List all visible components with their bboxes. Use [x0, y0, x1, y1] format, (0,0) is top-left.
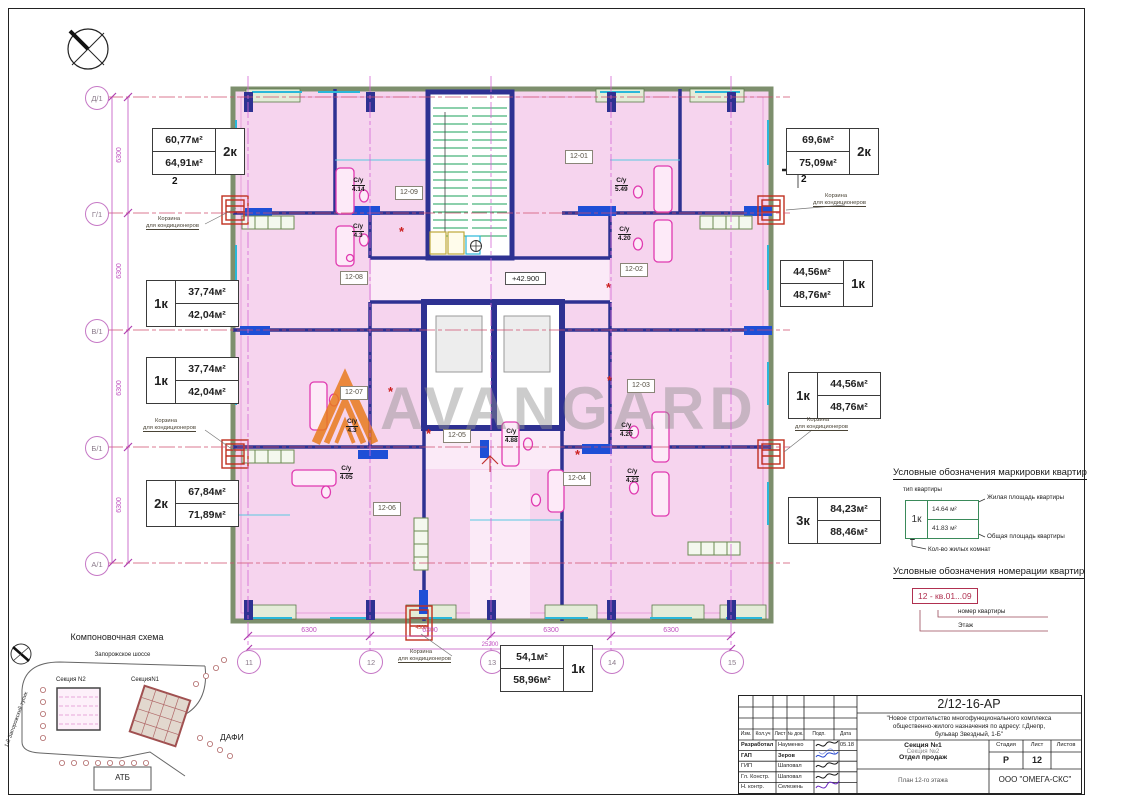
apartment-tag: 12-01: [565, 150, 593, 164]
signatures: [816, 741, 839, 788]
apartment-tag: 12-02: [620, 263, 648, 277]
axis-bubble-col: 11: [237, 650, 261, 674]
t-role: ГИП: [741, 763, 752, 769]
area-label: 84,23м²88,46м² 3к: [788, 497, 881, 544]
apartment-tag: 12-06: [373, 502, 401, 516]
area-label: 54,1м²58,96м² 1к: [500, 645, 593, 692]
wc-label: С/у5.49: [615, 177, 628, 193]
legend-marking-title: Условные обозначения маркировки квартир: [893, 467, 1087, 480]
basket-note: Корзинадля кондиционеров: [398, 649, 451, 663]
section-number: 2: [801, 174, 807, 185]
tb-project-desc: бульвар Звездный, 1-Б": [859, 731, 1079, 738]
area-label: 69,6м²75,09м² 2к: [786, 128, 879, 175]
wc-label: С/у4.20: [618, 226, 631, 242]
tb-name: Шаповал: [778, 774, 802, 780]
basket-note: Корзинадля кондиционеров: [795, 417, 848, 431]
tb-project-desc: "Новое строительство многофункциональног…: [859, 715, 1079, 722]
title-block: Изм. Кол.уч Лист № док. Подп. Дата Разра…: [738, 695, 1082, 794]
wc-label: С/у4.05: [340, 465, 353, 481]
apartment-tag: 12-07: [340, 386, 368, 400]
tb-name: Шаповал: [778, 763, 802, 769]
section-number: 2: [172, 176, 178, 187]
area-label: 37,74м²42,04м² 1к: [146, 357, 239, 404]
legend-living-label: Жилая площадь квартиры: [987, 494, 1064, 501]
axis-bubble-row: Д/1: [85, 86, 109, 110]
site-atb-label: АТБ: [94, 773, 151, 782]
tb-stage-value: Р: [989, 755, 1023, 765]
tb-role: ГАП: [741, 753, 752, 759]
tb-doc-code: 2/12-16-АР: [857, 697, 1081, 711]
legend-numbering-sample: 12 - кв.01...09: [912, 588, 978, 604]
area-label: 44,56м²48,76м² 1к: [780, 260, 873, 307]
legend-numbering-title: Условные обозначения номерации квартир: [893, 566, 1084, 579]
axis-bubble-row: А/1: [85, 552, 109, 576]
area-label: 44,56м²48,76м² 1к: [788, 372, 881, 419]
tb-name: Науменко: [778, 742, 804, 748]
tb-drawing-title: План 12-го этажа: [857, 777, 989, 784]
site-road-label: Запорожское шоссе: [70, 652, 175, 658]
tb-stage-header: Стадия: [989, 742, 1023, 748]
wc-label: С/у4.14: [352, 177, 365, 193]
legend-rooms-label: Кол-во жилых комнат: [928, 546, 991, 553]
site-section2-label: Секция N2: [56, 677, 86, 683]
tb-col-header: № док.: [787, 731, 804, 737]
axis-bubble-col: 14: [600, 650, 624, 674]
area-label: 60,77м²64,91м² 2к: [152, 128, 245, 175]
tb-role: Н. контр.: [741, 784, 764, 790]
tb-company: ООО "ОМЕГА-СКС": [989, 775, 1081, 784]
tb-col-header: Кол.уч: [753, 731, 773, 737]
avangard-logo-icon: [310, 368, 380, 450]
apartment-tag: 12-09: [395, 186, 423, 200]
tb-sales: Отдел продаж: [857, 754, 989, 761]
wc-label: С/у4.20: [620, 422, 633, 438]
legend-floor-label: Этаж: [958, 622, 973, 629]
basket-note: Корзинадля кондиционеров: [143, 418, 196, 432]
wc-label: С/у4.3: [352, 223, 364, 239]
apartment-tag: 12-04: [563, 472, 591, 486]
tb-col-header: Лист: [773, 731, 787, 737]
site-plan-title: Компоновочная схема: [57, 632, 177, 642]
wc-label: С/у4.23: [626, 468, 639, 484]
site-dafi-label: ДАФИ: [220, 732, 244, 742]
legend-total-label: Общая площадь квартиры: [987, 533, 1065, 540]
legend-apt-label: номер квартиры: [958, 608, 1005, 615]
site-section1-label: СекцияN1: [131, 677, 159, 683]
tb-name: Зеров: [778, 753, 795, 759]
tb-col-header: Дата: [834, 731, 857, 737]
tb-sheet-header: Лист: [1023, 742, 1051, 748]
basket-note: Корзинадля кондиционеров: [146, 216, 199, 230]
wc-label: С/у4.88: [505, 428, 518, 444]
axis-bubble-col: 15: [720, 650, 744, 674]
tb-col-header: Изм.: [739, 731, 753, 737]
tb-date: 05.18: [840, 742, 854, 748]
axis-bubble-row: Б/1: [85, 436, 109, 460]
watermark-text: AVANGARD: [380, 369, 758, 449]
axis-bubble-row: Г/1: [85, 202, 109, 226]
area-label: 67,84м²71,89м² 2к: [146, 480, 239, 527]
tb-role: Гл. Констр.: [741, 774, 770, 780]
stair-core: [428, 92, 512, 258]
area-label: 37,74м²42,04м² 1к: [146, 280, 239, 327]
tb-sheet-value: 12: [1023, 755, 1051, 765]
legend-type-label: тип квартиры: [903, 486, 942, 493]
basket-note: Корзинадля кондиционеров: [813, 193, 866, 207]
tb-col-header: Подп.: [804, 731, 834, 737]
axis-bubble-row: В/1: [85, 319, 109, 343]
tb-role: Разработал: [741, 742, 773, 748]
apartment-tag: 12-08: [340, 271, 368, 285]
apartment-tag: 12-03: [627, 379, 655, 393]
drawing-sheet: *** *** AVANGARD: [0, 0, 1131, 800]
axis-bubble-col: 12: [359, 650, 383, 674]
apartment-tag: 12-05: [443, 429, 471, 443]
tb-name: Селезень: [778, 784, 803, 790]
wc-label: С/у4.3: [346, 418, 358, 434]
tb-sheets-header: Листов: [1051, 742, 1081, 748]
watermark: AVANGARD: [310, 368, 758, 450]
tb-project-desc: общественно-жилого назначения по адресу:…: [859, 723, 1079, 730]
legend-sample-box: 1к 14.64 м² 41.83 м²: [905, 500, 979, 539]
level-mark: +42.900: [505, 272, 546, 285]
